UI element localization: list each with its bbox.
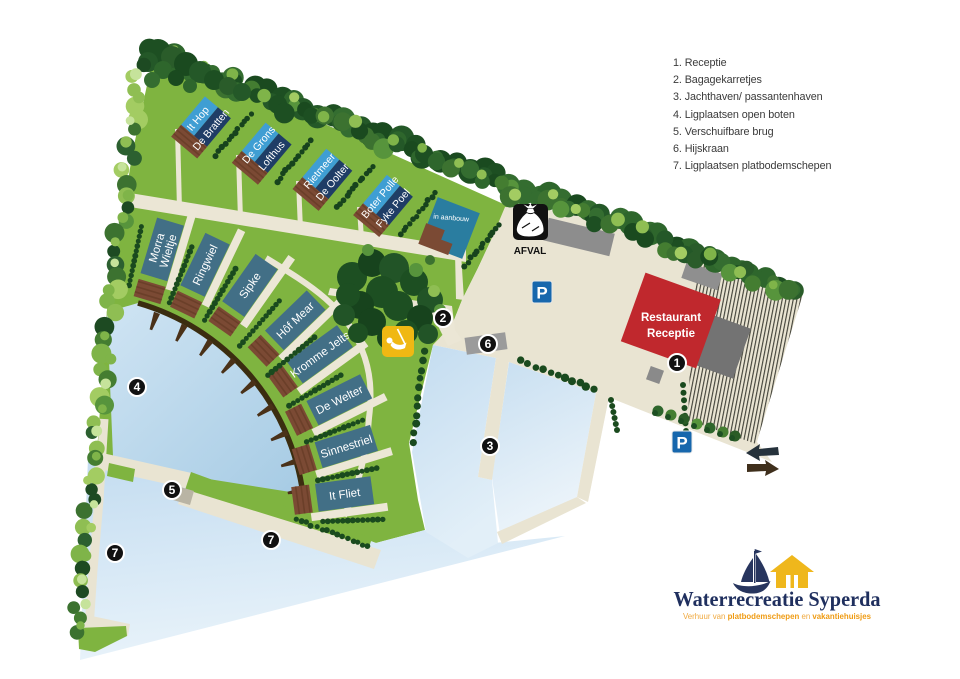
svg-text:7: 7 (112, 546, 119, 560)
svg-text:7: 7 (268, 533, 275, 547)
svg-text:3. Jachthaven/ passantenhaven: 3. Jachthaven/ passantenhaven (673, 91, 823, 103)
svg-text:Waterrecreatie Syperda: Waterrecreatie Syperda (674, 587, 881, 611)
svg-text:2: 2 (440, 311, 447, 325)
svg-text:P: P (536, 284, 547, 303)
svg-text:6: 6 (485, 337, 492, 351)
svg-text:Verhuur van platbodemschepen e: Verhuur van platbodemschepen en vakantie… (683, 611, 871, 621)
svg-text:6. Hijskraan: 6. Hijskraan (673, 143, 729, 155)
svg-text:P: P (676, 434, 687, 453)
svg-text:4: 4 (134, 380, 141, 394)
svg-text:2. Bagagekarretjes: 2. Bagagekarretjes (673, 74, 763, 86)
svg-text:4. Ligplaatsen open boten: 4. Ligplaatsen open boten (673, 109, 795, 121)
svg-text:1. Receptie: 1. Receptie (673, 57, 727, 69)
svg-text:1: 1 (674, 356, 681, 370)
svg-text:3: 3 (487, 439, 494, 453)
svg-text:Restaurant: Restaurant (641, 312, 701, 324)
svg-text:5. Verschuifbare brug: 5. Verschuifbare brug (673, 126, 774, 138)
svg-text:7. Ligplaatsen platbodemschepe: 7. Ligplaatsen platbodemschepen (673, 160, 831, 172)
svg-text:AFVAL: AFVAL (514, 246, 547, 257)
svg-text:5: 5 (169, 483, 176, 497)
svg-text:Receptie: Receptie (647, 328, 695, 340)
